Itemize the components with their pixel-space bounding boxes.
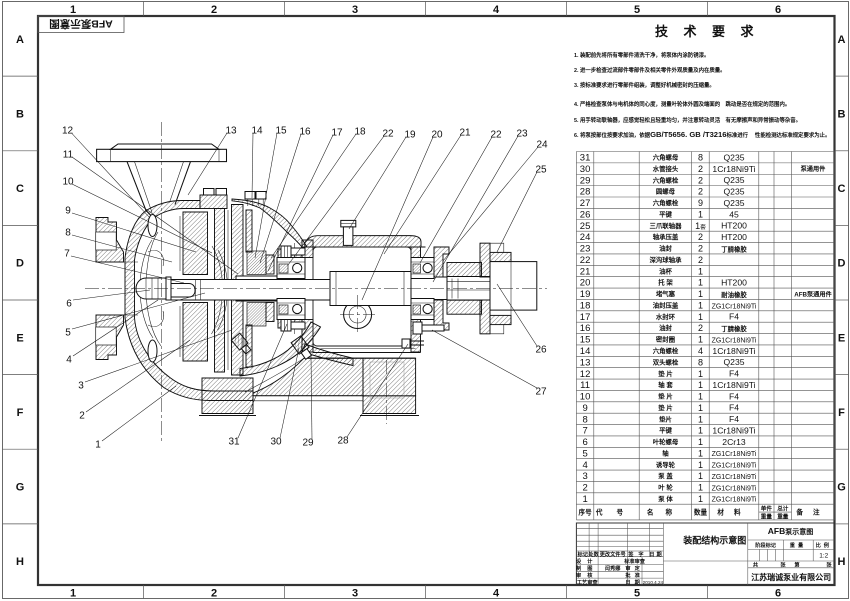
svg-text:5. 用手转动联轴器，应感觉轻松且轻重均匀，并注意转动灵活: 5. 用手转动联轴器，应感觉轻松且轻重均匀，并注意转动灵活 有无摩擦声和异常振动…: [574, 116, 801, 124]
svg-text:1Cr18Ni9Ti: 1Cr18Ni9Ti: [712, 164, 755, 174]
svg-text:1: 1: [698, 289, 703, 299]
svg-text:Q235: Q235: [723, 198, 744, 208]
svg-text:27: 27: [580, 198, 591, 209]
svg-text:张: 张: [780, 561, 786, 569]
svg-text:16: 16: [299, 127, 311, 138]
svg-text:HT200: HT200: [721, 232, 747, 242]
svg-text:ZG1Cr18Ni9Ti: ZG1Cr18Ni9Ti: [712, 474, 757, 481]
svg-text:1: 1: [698, 380, 703, 390]
svg-text:F: F: [838, 407, 845, 419]
svg-text:1: 1: [698, 448, 703, 458]
svg-text:泵 体: 泵 体: [657, 494, 673, 503]
svg-text:丁腈橡胶: 丁腈橡胶: [721, 324, 747, 333]
svg-text:工艺审查: 工艺审查: [577, 578, 599, 586]
svg-text:数量: 数量: [694, 508, 708, 517]
svg-text:1: 1: [698, 278, 703, 288]
svg-text:2: 2: [698, 164, 703, 174]
svg-text:材料: 材料: [716, 508, 750, 517]
svg-text:轴承压盖: 轴承压盖: [653, 232, 679, 241]
svg-text:水管接头: 水管接头: [653, 164, 679, 173]
svg-text:8: 8: [65, 228, 71, 239]
svg-text:26: 26: [580, 210, 591, 221]
svg-text:22: 22: [490, 130, 502, 141]
svg-text:11: 11: [63, 150, 74, 161]
svg-text:F4: F4: [729, 391, 739, 401]
svg-text:12: 12: [62, 126, 74, 137]
svg-text:六角螺栓: 六角螺栓: [653, 198, 679, 207]
svg-text:7: 7: [64, 249, 70, 260]
svg-text:28: 28: [337, 436, 349, 447]
svg-text:1: 1: [698, 369, 703, 379]
svg-text:江苏瑞诚泵业有限公司: 江苏瑞诚泵业有限公司: [751, 572, 831, 582]
svg-text:1:2: 1:2: [819, 553, 828, 560]
svg-text:4. 严格检查泵体与电机体的同心度，测量叶轮体外圆及端面的: 4. 严格检查泵体与电机体的同心度，测量叶轮体外圆及端面的 跳动是否在规定的范围…: [574, 100, 790, 108]
svg-text:9: 9: [582, 403, 587, 414]
svg-text:单件: 单件: [761, 505, 773, 513]
svg-text:B: B: [838, 108, 846, 120]
svg-text:4: 4: [698, 346, 703, 356]
svg-text:15: 15: [275, 126, 287, 137]
svg-text:诱导轮: 诱导轮: [656, 460, 676, 469]
svg-text:18: 18: [580, 301, 591, 312]
svg-text:处数: 处数: [587, 550, 599, 558]
svg-text:双头螺栓: 双头螺栓: [653, 357, 679, 366]
svg-text:8: 8: [698, 357, 703, 367]
svg-text:28: 28: [580, 187, 591, 198]
svg-text:15: 15: [580, 335, 591, 346]
svg-text:3. 按标准要求进行零部件组装，调整好机械密封的压缩量。: 3. 按标准要求进行零部件组装，调整好机械密封的压缩量。: [574, 81, 715, 89]
svg-text:泵通用件: 泵通用件: [801, 165, 827, 173]
svg-text:2: 2: [698, 255, 703, 265]
svg-text:垫 片: 垫 片: [658, 403, 673, 412]
svg-text:24: 24: [536, 140, 548, 151]
svg-text:三爪联轴器: 三爪联轴器: [650, 221, 683, 230]
svg-text:4: 4: [582, 460, 587, 471]
svg-text:29: 29: [580, 175, 591, 186]
svg-text:24: 24: [580, 232, 591, 243]
svg-text:10: 10: [580, 392, 591, 403]
svg-text:2: 2: [211, 588, 217, 600]
svg-text:六角螺母: 六角螺母: [653, 153, 679, 162]
svg-text:22: 22: [382, 129, 394, 140]
svg-text:标记: 标记: [577, 550, 589, 558]
svg-text:19: 19: [580, 289, 591, 300]
svg-text:批准: 批准: [625, 571, 643, 579]
svg-text:31: 31: [580, 153, 591, 164]
svg-text:1: 1: [698, 414, 703, 424]
svg-text:B: B: [16, 108, 24, 120]
svg-text:ZG1Cr18Ni9Ti: ZG1Cr18Ni9Ti: [712, 497, 757, 504]
svg-text:垫 片: 垫 片: [658, 392, 673, 401]
svg-text:泵 盖: 泵 盖: [657, 471, 673, 480]
svg-text:轴: 轴: [662, 448, 669, 457]
svg-text:F4: F4: [729, 312, 739, 322]
svg-text:Q235: Q235: [723, 187, 744, 197]
svg-text:水封环: 水封环: [656, 312, 676, 321]
svg-text:14: 14: [580, 346, 591, 357]
svg-text:2: 2: [79, 411, 85, 422]
svg-text:油封: 油封: [659, 244, 672, 253]
svg-text:比例: 比例: [816, 541, 832, 549]
svg-text:21: 21: [580, 266, 591, 277]
svg-text:叶 轮: 叶 轮: [658, 483, 673, 492]
svg-text:6: 6: [775, 588, 781, 600]
svg-text:1: 1: [698, 266, 703, 276]
svg-text:2Cr13: 2Cr13: [722, 437, 746, 447]
svg-text:张: 张: [826, 561, 832, 569]
svg-text:垫 片: 垫 片: [658, 369, 673, 378]
svg-text:17: 17: [331, 128, 343, 139]
svg-text:设计: 设计: [576, 557, 598, 565]
svg-text:更改文件号: 更改文件号: [600, 550, 626, 558]
svg-text:油杯: 油杯: [659, 266, 672, 275]
svg-text:C: C: [16, 183, 24, 195]
svg-text:1: 1: [698, 335, 703, 345]
svg-text:H: H: [16, 556, 24, 568]
svg-text:1: 1: [698, 210, 703, 220]
svg-text:HT200: HT200: [721, 278, 747, 288]
svg-text:ZG1Cr18Ni9Ti: ZG1Cr18Ni9Ti: [712, 337, 757, 344]
svg-text:HT200: HT200: [721, 221, 747, 231]
svg-text:1: 1: [698, 403, 703, 413]
svg-text:D: D: [16, 258, 24, 270]
svg-text:8: 8: [698, 153, 703, 163]
svg-text:25: 25: [535, 165, 547, 176]
svg-text:22: 22: [580, 255, 591, 266]
svg-text:45: 45: [729, 209, 739, 219]
svg-text:2: 2: [698, 232, 703, 242]
svg-text:6: 6: [775, 4, 781, 16]
svg-text:12: 12: [580, 369, 591, 380]
svg-text:标准审查: 标准审查: [623, 557, 646, 565]
svg-text:29: 29: [302, 438, 314, 449]
svg-text:1: 1: [698, 471, 703, 481]
svg-text:11: 11: [580, 380, 590, 391]
svg-text:1: 1: [70, 4, 76, 16]
svg-text:代号: 代号: [595, 508, 637, 517]
svg-text:1Cr18Ni9Ti: 1Cr18Ni9Ti: [712, 346, 755, 356]
svg-text:G: G: [16, 482, 25, 494]
svg-text:堵气塞: 堵气塞: [656, 289, 676, 298]
svg-text:20: 20: [580, 278, 591, 289]
svg-text:1: 1: [698, 392, 703, 402]
svg-text:23: 23: [516, 129, 528, 140]
svg-text:重量: 重量: [777, 513, 789, 521]
svg-text:19: 19: [404, 130, 416, 141]
svg-text:9: 9: [698, 198, 703, 208]
svg-text:ZG1Cr18Ni9Ti: ZG1Cr18Ni9Ti: [712, 451, 757, 458]
svg-text:3: 3: [352, 588, 358, 600]
svg-text:油封压盖: 油封压盖: [653, 301, 679, 310]
svg-text:备注: 备注: [795, 508, 829, 517]
svg-text:2: 2: [698, 175, 703, 185]
svg-text:E: E: [16, 332, 23, 344]
svg-text:4: 4: [493, 4, 500, 16]
svg-text:总计: 总计: [777, 505, 789, 513]
svg-text:2010.4.24: 2010.4.24: [643, 580, 664, 585]
svg-text:1: 1: [698, 460, 703, 470]
svg-text:F4: F4: [729, 414, 739, 424]
svg-text:1: 1: [582, 494, 587, 505]
svg-text:D: D: [838, 258, 846, 270]
svg-text:丁腈橡胶: 丁腈橡胶: [721, 244, 747, 253]
svg-text:13: 13: [225, 126, 237, 137]
svg-text:2: 2: [582, 483, 587, 494]
svg-text:托 架: 托 架: [658, 278, 673, 287]
svg-text:10: 10: [62, 177, 74, 188]
svg-text:2: 2: [698, 187, 703, 197]
svg-text:审定: 审定: [625, 564, 643, 572]
svg-text:4: 4: [493, 588, 500, 600]
svg-text:装配结构示意图: 装配结构示意图: [682, 535, 746, 546]
svg-text:14: 14: [251, 126, 263, 137]
svg-text:日期: 日期: [625, 578, 643, 586]
svg-text:序号: 序号: [579, 508, 593, 517]
svg-text:深沟球轴承: 深沟球轴承: [650, 255, 683, 264]
svg-text:1: 1: [698, 301, 703, 311]
svg-text:H: H: [838, 556, 846, 568]
svg-text:ZG1Cr18Ni9Ti: ZG1Cr18Ni9Ti: [712, 463, 757, 470]
svg-text:1: 1: [95, 440, 101, 451]
svg-text:1: 1: [698, 312, 703, 322]
svg-text:ZG1Cr18Ni9Ti: ZG1Cr18Ni9Ti: [712, 485, 757, 492]
svg-text:垫片: 垫片: [659, 414, 672, 423]
svg-text:7: 7: [582, 426, 587, 437]
svg-text:9: 9: [65, 206, 71, 217]
svg-text:27: 27: [535, 387, 547, 398]
svg-text:六角螺栓: 六角螺栓: [653, 346, 679, 355]
svg-text:耐油橡胶: 耐油橡胶: [721, 290, 747, 299]
svg-text:阶段标记: 阶段标记: [755, 541, 777, 549]
svg-text:1: 1: [698, 426, 703, 436]
svg-text:2: 2: [698, 244, 703, 254]
svg-text:31: 31: [228, 437, 240, 448]
svg-text:30: 30: [270, 437, 282, 448]
svg-text:4: 4: [66, 355, 72, 366]
svg-text:第: 第: [794, 561, 800, 569]
svg-text:2: 2: [211, 4, 217, 16]
svg-text:F4: F4: [729, 369, 739, 379]
svg-text:闫秀娜: 闫秀娜: [605, 564, 621, 572]
svg-text:C: C: [838, 183, 846, 195]
svg-text:平键: 平键: [659, 426, 672, 435]
svg-text:重量: 重量: [790, 541, 806, 549]
svg-text:25: 25: [580, 221, 591, 232]
svg-text:1Cr18Ni9Ti: 1Cr18Ni9Ti: [712, 425, 755, 435]
svg-text:F: F: [17, 407, 24, 419]
svg-text:2: 2: [698, 323, 703, 333]
svg-text:3: 3: [78, 381, 84, 392]
svg-text:名称: 名称: [647, 508, 684, 517]
svg-text:叶轮螺母: 叶轮螺母: [653, 437, 679, 446]
svg-text:F4: F4: [729, 403, 739, 413]
svg-text:5: 5: [634, 4, 640, 16]
svg-text:A: A: [16, 34, 24, 46]
svg-text:六角螺栓: 六角螺栓: [653, 175, 679, 184]
svg-text:ZG1Cr18Ni9Ti: ZG1Cr18Ni9Ti: [712, 303, 757, 310]
svg-text:1Cr18Ni9Ti: 1Cr18Ni9Ti: [712, 380, 755, 390]
svg-text:8: 8: [582, 414, 587, 425]
svg-text:1. 装配前先将所有零部件清洗干净，将泵体内涂防锈漆。: 1. 装配前先将所有零部件清洗干净，将泵体内涂防锈漆。: [574, 51, 709, 59]
svg-text:1: 1: [698, 437, 703, 447]
svg-text:密封圈: 密封圈: [655, 335, 676, 344]
svg-text:E: E: [838, 332, 845, 344]
svg-text:签字: 签字: [627, 550, 648, 558]
svg-text:5: 5: [634, 588, 640, 600]
svg-text:1: 1: [698, 483, 703, 493]
svg-text:A: A: [838, 34, 846, 46]
svg-text:17: 17: [580, 312, 591, 323]
svg-text:技术要求: 技术要求: [655, 24, 769, 39]
svg-text:油封: 油封: [659, 323, 672, 332]
svg-text:1: 1: [698, 494, 703, 504]
svg-text:5: 5: [582, 448, 587, 459]
svg-text:Q235: Q235: [723, 175, 744, 185]
svg-text:3: 3: [582, 471, 587, 482]
svg-text:平键: 平键: [659, 210, 672, 219]
svg-text:Q235: Q235: [723, 357, 744, 367]
svg-text:重量: 重量: [761, 513, 773, 521]
svg-text:13: 13: [580, 357, 591, 368]
svg-text:AFB泵示意图: AFB泵示意图: [49, 17, 113, 30]
svg-text:制图: 制图: [576, 564, 598, 572]
svg-text:1: 1: [70, 588, 76, 600]
svg-text:23: 23: [580, 244, 591, 255]
svg-text:2. 进一步检查过流部件零部件及相关零件外观质量及内在质量。: 2. 进一步检查过流部件零部件及相关零件外观质量及内在质量。: [574, 66, 726, 74]
svg-text:3: 3: [352, 4, 358, 16]
svg-text:6: 6: [582, 437, 587, 448]
svg-text:5: 5: [65, 328, 71, 339]
svg-text:6: 6: [66, 299, 72, 310]
svg-text:18: 18: [354, 127, 366, 138]
svg-text:日期: 日期: [649, 550, 663, 558]
svg-text:26: 26: [535, 345, 547, 356]
svg-text:共: 共: [753, 561, 759, 569]
svg-text:Q235: Q235: [723, 152, 744, 162]
svg-text:21: 21: [459, 128, 471, 139]
svg-text:轴 套: 轴 套: [658, 380, 673, 389]
svg-text:16: 16: [580, 323, 591, 334]
svg-text:审核: 审核: [576, 571, 598, 579]
svg-text:G: G: [837, 482, 846, 494]
svg-text:20: 20: [431, 130, 443, 141]
svg-text:30: 30: [580, 164, 591, 175]
svg-text:AFB泵通用件: AFB泵通用件: [794, 290, 832, 298]
svg-text:圆螺母: 圆螺母: [656, 187, 676, 196]
